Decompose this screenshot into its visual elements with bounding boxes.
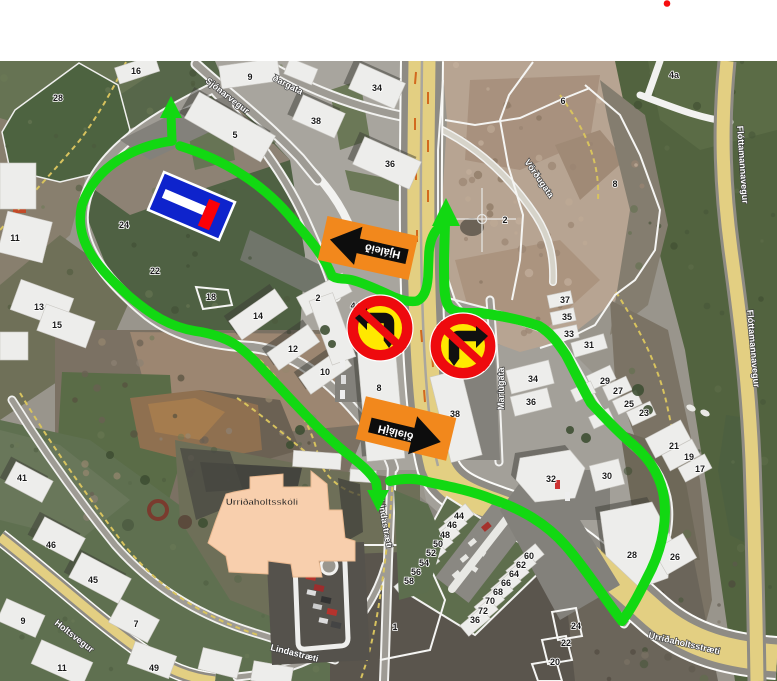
svg-text:70: 70 [485, 596, 495, 606]
svg-text:2: 2 [315, 293, 320, 303]
svg-text:30: 30 [602, 471, 612, 481]
svg-text:58: 58 [404, 576, 414, 586]
svg-text:2: 2 [502, 215, 507, 225]
svg-text:23: 23 [639, 408, 649, 418]
svg-text:24: 24 [571, 621, 581, 631]
svg-text:27: 27 [613, 386, 623, 396]
svg-text:26: 26 [670, 552, 680, 562]
svg-text:28: 28 [53, 93, 63, 103]
svg-text:9: 9 [20, 616, 25, 626]
svg-text:Maríugata: Maríugata [496, 366, 506, 410]
svg-text:15: 15 [52, 320, 62, 330]
svg-text:25: 25 [624, 399, 634, 409]
svg-text:35: 35 [562, 312, 572, 322]
svg-text:49: 49 [149, 663, 159, 673]
svg-text:45: 45 [88, 575, 98, 585]
svg-text:7: 7 [133, 619, 138, 629]
svg-text:Urriðaholtsskóli: Urriðaholtsskóli [226, 497, 298, 508]
svg-text:52: 52 [426, 548, 436, 558]
svg-text:18: 18 [206, 292, 216, 302]
svg-text:22: 22 [561, 638, 571, 648]
svg-text:33: 33 [564, 329, 574, 339]
svg-text:19: 19 [684, 452, 694, 462]
svg-text:11: 11 [10, 233, 20, 243]
svg-text:14: 14 [253, 311, 263, 321]
svg-text:32: 32 [546, 474, 556, 484]
svg-text:6: 6 [560, 96, 565, 106]
svg-text:9: 9 [247, 72, 252, 82]
svg-text:4a: 4a [669, 70, 680, 80]
svg-text:5: 5 [232, 130, 237, 140]
svg-text:22: 22 [150, 266, 160, 276]
svg-text:28: 28 [627, 550, 637, 560]
svg-text:46: 46 [46, 540, 56, 550]
svg-text:21: 21 [669, 441, 679, 451]
svg-text:20: 20 [550, 657, 560, 667]
svg-text:8: 8 [376, 383, 381, 393]
svg-text:11: 11 [57, 663, 67, 673]
svg-text:46: 46 [447, 520, 457, 530]
svg-text:41: 41 [17, 473, 27, 483]
svg-text:36: 36 [470, 615, 480, 625]
svg-text:31: 31 [584, 340, 594, 350]
svg-text:29: 29 [600, 376, 610, 386]
svg-text:8: 8 [612, 179, 617, 189]
svg-text:38: 38 [311, 116, 321, 126]
svg-text:13: 13 [34, 302, 44, 312]
svg-text:10: 10 [320, 367, 330, 377]
svg-text:1: 1 [392, 622, 397, 632]
svg-text:37: 37 [560, 295, 570, 305]
svg-text:17: 17 [695, 464, 705, 474]
svg-text:34: 34 [528, 374, 538, 384]
svg-text:36: 36 [385, 159, 395, 169]
svg-text:36: 36 [526, 397, 536, 407]
svg-text:24: 24 [119, 220, 129, 230]
svg-text:34: 34 [372, 83, 382, 93]
svg-text:12: 12 [288, 344, 298, 354]
svg-text:16: 16 [131, 66, 141, 76]
